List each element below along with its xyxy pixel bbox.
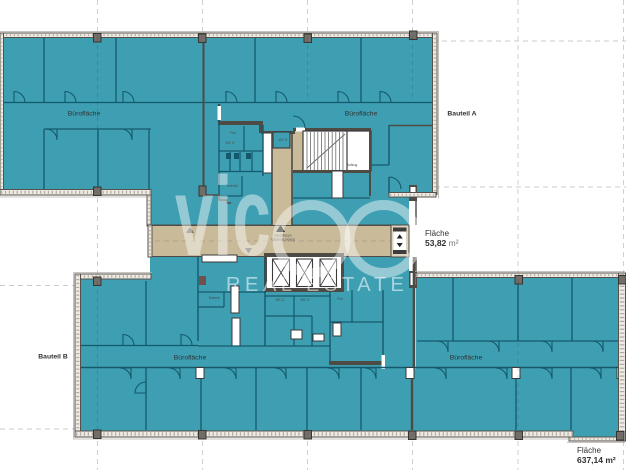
svg-text:Fläche: Fläche [577,446,602,455]
svg-text:WC H: WC H [225,141,235,145]
svg-text:Bürofläche: Bürofläche [450,355,483,362]
svg-text:Bauteil B: Bauteil B [38,354,68,361]
svg-text:vic: vic [175,154,271,279]
svg-text:Fläche: Fläche [425,229,450,238]
svg-text:Flur: Flur [337,297,344,301]
svg-text:53,82 m²: 53,82 m² [425,238,459,248]
svg-text:WC B: WC B [279,138,289,142]
svg-text:Flur: Flur [230,131,237,135]
svg-text:637,14 m²: 637,14 m² [577,455,616,465]
svg-text:Bürofläche: Bürofläche [68,111,101,118]
svg-text:WC H: WC H [300,298,310,302]
svg-text:WC D: WC D [275,298,285,302]
svg-text:Aufzug: Aufzug [347,163,358,167]
svg-text:Bürofläche: Bürofläche [345,111,378,118]
svg-text:Bauteil A: Bauteil A [447,111,476,118]
svg-text:Bürofläche: Bürofläche [174,355,207,362]
svg-text:REAL ESTATE: REAL ESTATE [226,274,409,296]
svg-text:Technik: Technik [208,296,220,300]
